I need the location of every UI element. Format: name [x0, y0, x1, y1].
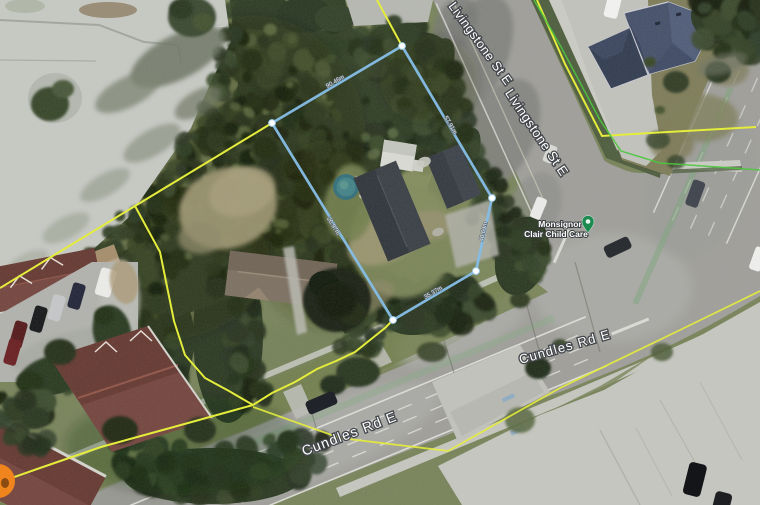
svg-text:Monsignor: Monsignor	[538, 219, 582, 229]
svg-text:Clair Child Care: Clair Child Care	[524, 229, 588, 239]
